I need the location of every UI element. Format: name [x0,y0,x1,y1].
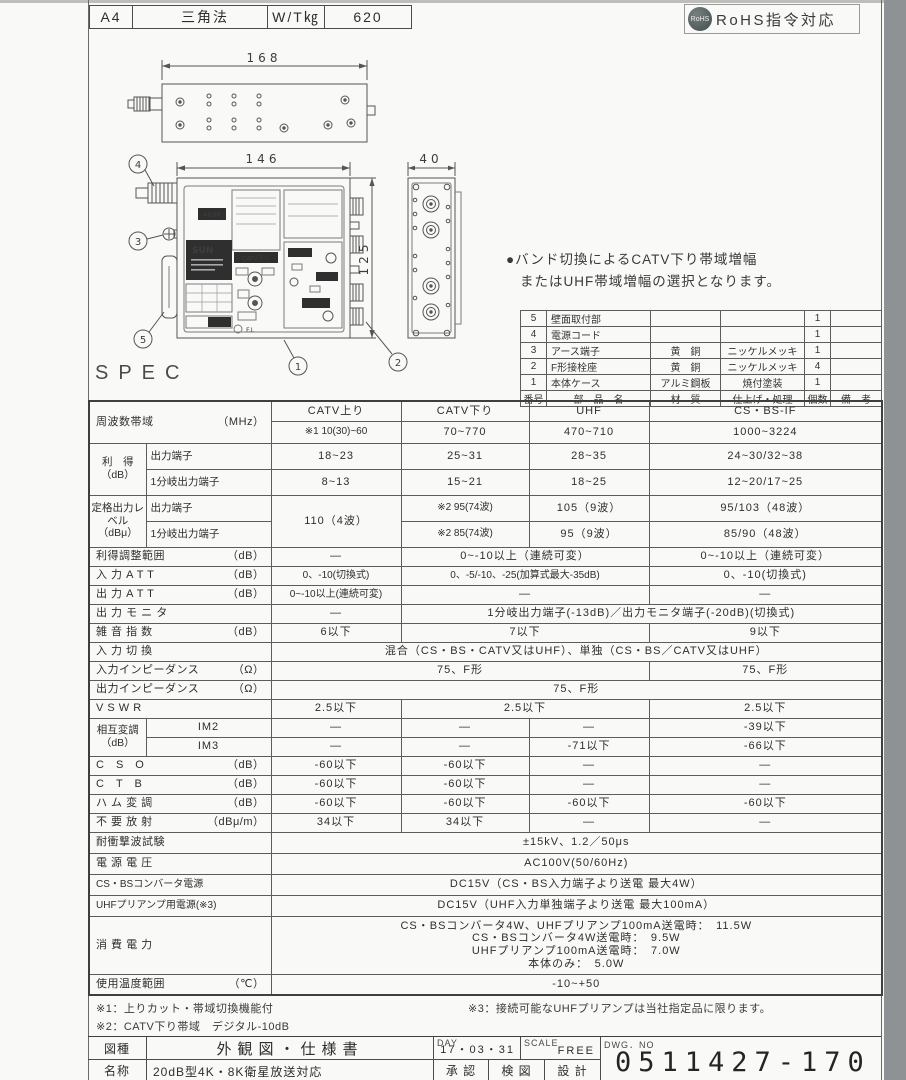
photo-right-edge [884,0,906,1080]
band-catv-down: CATV下り [401,401,529,421]
gain-value: 24~30/32~38 [649,443,882,469]
part-qty: 1 [805,375,831,391]
cso-row: C S O（dB） -60以下 -60以下 — — [89,756,882,775]
csbs-power-row: CS・BSコンバータ電源 DC15V（CS・BS入力端子より送電 最大4W） [89,874,882,895]
spec-sheet-page: A4 三角法 W/T㎏ 620 RoHS RoHS指令対応 [0,0,906,1080]
gain-value: 18~25 [529,469,649,495]
part-finish [721,327,805,343]
value: 0、-10(切換式) [649,566,882,585]
temp-range-row: 使用温度範囲（℃） -10~+50 [89,974,882,995]
value: 2.5以下 [649,699,882,718]
value: -71以下 [529,737,649,756]
value: — [649,775,882,794]
sub-label: 1分岐出力端子 [146,469,271,495]
gain-value: 12~20/17~25 [649,469,882,495]
consumption-values: CS・BSコンバータ4W、UHFプリアンプ100mA送電時： 11.5W CS・… [271,916,882,974]
value: 9以下 [649,623,882,642]
row-label: 雑 音 指 数 [96,626,153,639]
sub-label: IM3 [146,737,271,756]
spurious-row: 不 要 放 射（dBμ/m） 34以下 34以下 — — [89,813,882,832]
part-no: 4 [521,327,547,343]
im3-row: IM3 — — -71以下 -66以下 [89,737,882,756]
footnote-3: ※3：接続可能なUHFプリアンプは当社指定品に限ります。 [468,1000,771,1016]
row-unit: （dB） [227,778,264,791]
row-unit: （dB） [227,626,264,639]
row-label: 出 力 A T T [96,588,154,601]
value: -60以下 [401,775,529,794]
part-qty: 1 [805,327,831,343]
weight-label: W/T㎏ [268,5,325,29]
front-view-drawing: 146 4K8K SUN CATV下り [136,152,376,338]
consumption-line: CS・BSコンバータ4W送電時： 9.5W [274,932,880,945]
sub-label: 1分岐出力端子 [146,521,271,547]
value: — [529,775,649,794]
input-att-row: 入 力 A T T（dB） 0、-10(切換式) 0、-5/-10、-25(加算… [89,566,882,585]
gain-value: 8~13 [271,469,401,495]
row-unit: （dB） [91,469,145,482]
rated-output-row-2: 1分岐出力端子 ※2 85(74波) 95（9波） 85/90（48波） [89,521,882,547]
row-label: C S O [96,759,144,772]
row-label: UHFプリアンプ用電源(※3) [96,900,216,912]
footnote-1: ※1：上りカット・帯域切換機能付 [96,1000,273,1016]
scale-label: SCALE [524,1038,559,1048]
value: 0~-10以上(連続可変) [271,585,401,604]
value: 75、F形 [271,661,649,680]
note-line-2: またはUHF帯域増幅の選択となります。 [506,271,878,293]
row-label: 入 力 切 換 [96,645,153,658]
paper-size: A4 [89,5,133,29]
value: — [649,756,882,775]
value: — [649,813,882,832]
row-label: CS・BSコンバータ電源 [96,879,203,891]
spec-heading: SPEC [95,362,189,385]
input-select-row: 入 力 切 換 混合（CS・BS・CATV又はUHF）、単独（CS・BS／CAT… [89,642,882,661]
value: 2.5以下 [271,699,401,718]
value: -60以下 [271,775,401,794]
part-name: 壁面取付部 [547,311,651,327]
input-impedance-row: 入力インピーダンス（Ω） 75、F形 75、F形 [89,661,882,680]
part-no: 1 [521,375,547,391]
value: -60以下 [401,794,529,813]
part-finish: 焼付塗装 [721,375,805,391]
row-label: 不 要 放 射 [96,816,153,829]
value: 75、F形 [271,680,882,699]
row-label: 出 力 モ ニ タ [96,607,168,620]
consumption-line: 本体のみ： 5.0W [274,958,880,971]
value: DC15V（CS・BS入力端子より送電 最大4W） [271,874,882,895]
spec-table: 周波数帯域（MHz） CATV上り CATV下り UHF CS・BS-IF ※1… [88,400,883,996]
row-unit: （Ω） [233,664,265,677]
part-material: 黄 銅 [651,343,721,359]
part-finish: ニッケルメッキ [721,359,805,375]
value: — [529,813,649,832]
row-label: 相互変調（dB） [91,724,145,749]
value: 混合（CS・BS・CATV又はUHF）、単独（CS・BS／CATV又はUHF） [271,642,882,661]
day-cell: DAY 17・03・31 [433,1037,520,1059]
product-name-label: 名称 [88,1059,146,1080]
part-no: 5 [521,311,547,327]
callout-2: 2 [395,358,401,369]
part-note [831,311,882,327]
row-label: 電 源 電 圧 [96,857,153,870]
approve-cell: 承 認 [433,1059,488,1080]
row-unit: （dB） [227,550,264,563]
part-material [651,311,721,327]
row-unit: （dBμ） [91,527,145,540]
value: 0、-5/-10、-25(加算式最大-35dB) [401,566,649,585]
rated-value: 95/103（48波） [649,495,882,521]
part-material [651,327,721,343]
callout-1: 1 [295,362,301,373]
row-label: 入 力 A T T [96,569,154,582]
value: 6以下 [271,623,401,642]
side-view-drawing: 40 [408,152,461,338]
value: — [271,737,401,756]
rated-value: ※2 85(74波) [401,521,529,547]
gain-value: 18~23 [271,443,401,469]
dimension-side-width: 40 [419,152,442,166]
value: — [401,737,529,756]
value: — [529,718,649,737]
ctb-row: C T B（dB） -60以下 -60以下 — — [89,775,882,794]
scale-cell: SCALE FREE [520,1037,600,1059]
row-label: 入力インピーダンス [96,664,199,677]
check-cell: 検 図 [488,1059,544,1080]
row-label: 出力インピーダンス [96,683,199,696]
rated-value: 85/90（48波） [649,521,882,547]
dimension-front-height: 125 [357,241,371,276]
voltage-row: 電 源 電 圧 AC100V(50/60Hz) [89,853,882,874]
row-label: 利得調整範囲 [96,550,165,563]
value: 2.5以下 [401,699,649,718]
rohs-text: RoHS指令対応 [716,9,836,30]
part-note [831,375,882,391]
value: 0~-10以上（連続可変） [401,547,649,566]
value: — [401,718,529,737]
note-line-1: ●バンド切換によるCATV下り帯域増幅 [506,249,878,271]
value: -60以下 [271,794,401,813]
gain-value: 25~31 [401,443,529,469]
output-impedance-row: 出力インピーダンス（Ω） 75、F形 [89,680,882,699]
table-row: 2 F形接栓座 黄 銅 ニッケルメッキ 4 [521,359,882,375]
gain-value: 28~35 [529,443,649,469]
row-label: 定格出力レベル [91,502,145,527]
projection-method: 三角法 [133,5,268,29]
rohs-mark: RoHS RoHS指令対応 [684,4,860,34]
value: -66以下 [649,737,882,756]
wall-mount-tab [162,256,177,318]
drawing-header-strip: A4 三角法 W/T㎏ 620 [89,5,412,29]
table-row: 1 本体ケース アルミ鋼板 焼付塗装 1 [521,375,882,391]
row-unit: （℃） [229,978,265,991]
scale-value: FREE [558,1045,595,1057]
dwg-no-cell: DWG．NO 0511427-170 [600,1037,881,1080]
part-no: 3 [521,343,547,359]
value: -60以下 [401,756,529,775]
value: -10~+50 [271,974,882,995]
footnote-2: ※2：CATV下り帯域 デジタル-10dB [96,1018,290,1034]
rated-value: 95（9波） [529,521,649,547]
row-unit: （MHz） [217,416,264,429]
consumption-line: CS・BSコンバータ4W、UHFプリアンプ100mA送電時： 11.5W [274,920,880,933]
dimension-front-width: 146 [246,152,281,166]
vswr-row: V S W R 2.5以下 2.5以下 2.5以下 [89,699,882,718]
value: — [649,585,882,604]
consumption-line: UHFプリアンプ100mA送電時： 7.0W [274,945,880,958]
row-label: 消 費 電 力 [96,939,153,952]
brand-logo-text: SUN [192,246,213,256]
band-switch-note: ●バンド切換によるCATV下り帯域増幅 またはUHF帯域増幅の選択となります。 [506,249,878,294]
part-name: アース端子 [547,343,651,359]
part-name: 電源コード [547,327,651,343]
part-material: 黄 銅 [651,359,721,375]
value: 34以下 [401,813,529,832]
freq-value: ※1 10(30)~60 [271,421,401,443]
row-label: 利 得 [91,456,145,469]
im2-row: 相互変調（dB） IM2 — — — -39以下 [89,718,882,737]
table-row: 4 電源コード 1 [521,327,882,343]
side-f-connectors [423,196,439,320]
output-monitor-row: 出 力 モ ニ タ — 1分岐出力端子(-13dB)／出力モニタ端子(-20dB… [89,604,882,623]
table-row: 5 壁面取付部 1 [521,311,882,327]
panel-fl-label: F.L [246,326,255,334]
band-uhf: UHF [529,401,649,421]
gain-value: 15~21 [401,469,529,495]
dimension-overall-width: 168 [247,51,282,65]
row-label: 使用温度範囲 [96,978,165,991]
row-label: 耐衝撃波試験 [96,836,165,849]
row-unit: （dB） [227,569,264,582]
part-material: アルミ鋼板 [651,375,721,391]
part-no: 2 [521,359,547,375]
value: 75、F形 [649,661,882,680]
freq-value: 70~770 [401,421,529,443]
gain-row-2: 1分岐出力端子 8~13 15~21 18~25 12~20/17~25 [89,469,882,495]
freq-value: 1000~3224 [649,421,882,443]
row-label: V S W R [96,702,142,715]
noise-figure-row: 雑 音 指 数（dB） 6以下 7以下 9以下 [89,623,882,642]
part-note [831,343,882,359]
engineering-drawing: 168 146 4K8K SUN CATV下り [88,36,508,406]
top-view-drawing: 168 [128,51,375,142]
day-value: 17・03・31 [440,1041,515,1057]
value: — [271,604,401,623]
row-label: C T B [96,778,142,791]
rated-value: ※2 95(74波) [401,495,529,521]
band-csbs: CS・BS-IF [649,401,882,421]
sub-label: 出力端子 [146,495,271,521]
part-qty: 1 [805,311,831,327]
table-row: 3 アース端子 黄 銅 ニッケルメッキ 1 [521,343,882,359]
freq-value: 470~710 [529,421,649,443]
gain-label-cell: 利 得 （dB） [89,443,146,495]
product-name-value: 20dB型4K・8K衛星放送対応 [146,1059,433,1080]
parts-list-table: 5 壁面取付部 1 4 電源コード 1 3 アース端子 黄 銅 ニッケルメッキ … [520,310,882,407]
sub-label: IM2 [146,718,271,737]
value: AC100V(50/60Hz) [271,853,882,874]
doc-type-label: 図種 [88,1037,146,1059]
hum-row: ハ ム 変 調（dB） -60以下 -60以下 -60以下 -60以下 [89,794,882,813]
output-att-row: 出 力 A T T（dB） 0~-10以上(連続可変) — — [89,585,882,604]
value: DC15V（UHF入力単独端子より送電 最大100mA） [271,895,882,916]
part-finish [721,311,805,327]
row-label: 周波数帯域 [96,416,154,429]
gain-adjust-row: 利得調整範囲（dB） — 0~-10以上（連続可変） 0~-10以上（連続可変） [89,547,882,566]
title-block: 図種 外観図・仕様書 DAY 17・03・31 SCALE FREE DWG．N… [88,1036,881,1080]
value: 34以下 [271,813,401,832]
value: -39以下 [649,718,882,737]
row-label: ハ ム 変 調 [96,797,153,810]
gain-row-1: 利 得 （dB） 出力端子 18~23 25~31 28~35 24~30/32… [89,443,882,469]
value: — [529,756,649,775]
rated-value: 110（4波） [271,495,401,547]
consumption-row: 消 費 電 力 CS・BSコンバータ4W、UHFプリアンプ100mA送電時： 1… [89,916,882,974]
callout-5: 5 [140,335,146,346]
row-unit: （dB） [227,759,264,772]
rated-output-row-1: 定格出力レベル （dBμ） 出力端子 110（4波） ※2 95(74波) 10… [89,495,882,521]
value: 7以下 [401,623,649,642]
value: ±15kV、1.2／50μs [271,832,882,853]
part-name: 本体ケース [547,375,651,391]
design-cell: 設 計 [544,1059,600,1080]
value: 0~-10以上（連続可変） [649,547,882,566]
value: -60以下 [649,794,882,813]
callout-4: 4 [135,160,141,171]
photo-top-edge [0,0,906,3]
part-name: F形接栓座 [547,359,651,375]
doc-type-value: 外観図・仕様書 [146,1037,433,1059]
value: -60以下 [271,756,401,775]
screw-holes [176,94,355,132]
row-unit: （Ω） [233,683,265,696]
rohs-badge-icon: RoHS [688,7,712,31]
weight-value: 620 [325,5,412,29]
value: — [271,718,401,737]
part-note [831,359,882,375]
badge-catv-down: CATV下り [242,256,270,263]
value: — [401,585,649,604]
freq-label-cell: 周波数帯域（MHz） [89,401,271,443]
row-unit: （dB） [227,588,264,601]
rated-value: 105（9波） [529,495,649,521]
freq-band-row: 周波数帯域（MHz） CATV上り CATV下り UHF CS・BS-IF [89,401,882,421]
band-catv-up: CATV上り [271,401,401,421]
sub-label: 出力端子 [146,443,271,469]
power-cord [136,183,177,203]
part-qty: 1 [805,343,831,359]
row-unit: （dB） [227,797,264,810]
part-qty: 4 [805,359,831,375]
part-finish: ニッケルメッキ [721,343,805,359]
value: 0、-10(切換式) [271,566,401,585]
row-unit: （dBμ/m） [207,816,265,829]
surge-row: 耐衝撃波試験 ±15kV、1.2／50μs [89,832,882,853]
value: -60以下 [529,794,649,813]
im-label-cell: 相互変調（dB） [89,718,146,756]
dwg-no-value: 0511427-170 [615,1047,871,1078]
badge-4k8k: 4K8K [203,211,221,219]
value: — [271,547,401,566]
ground-terminal [163,228,177,240]
uhf-power-row: UHFプリアンプ用電源(※3) DC15V（UHF入力単独端子より送電 最大10… [89,895,882,916]
rated-label-cell: 定格出力レベル （dBμ） [89,495,146,547]
part-note [831,327,882,343]
callout-3: 3 [135,237,141,248]
value: 1分岐出力端子(-13dB)／出力モニタ端子(-20dB)(切換式) [401,604,882,623]
